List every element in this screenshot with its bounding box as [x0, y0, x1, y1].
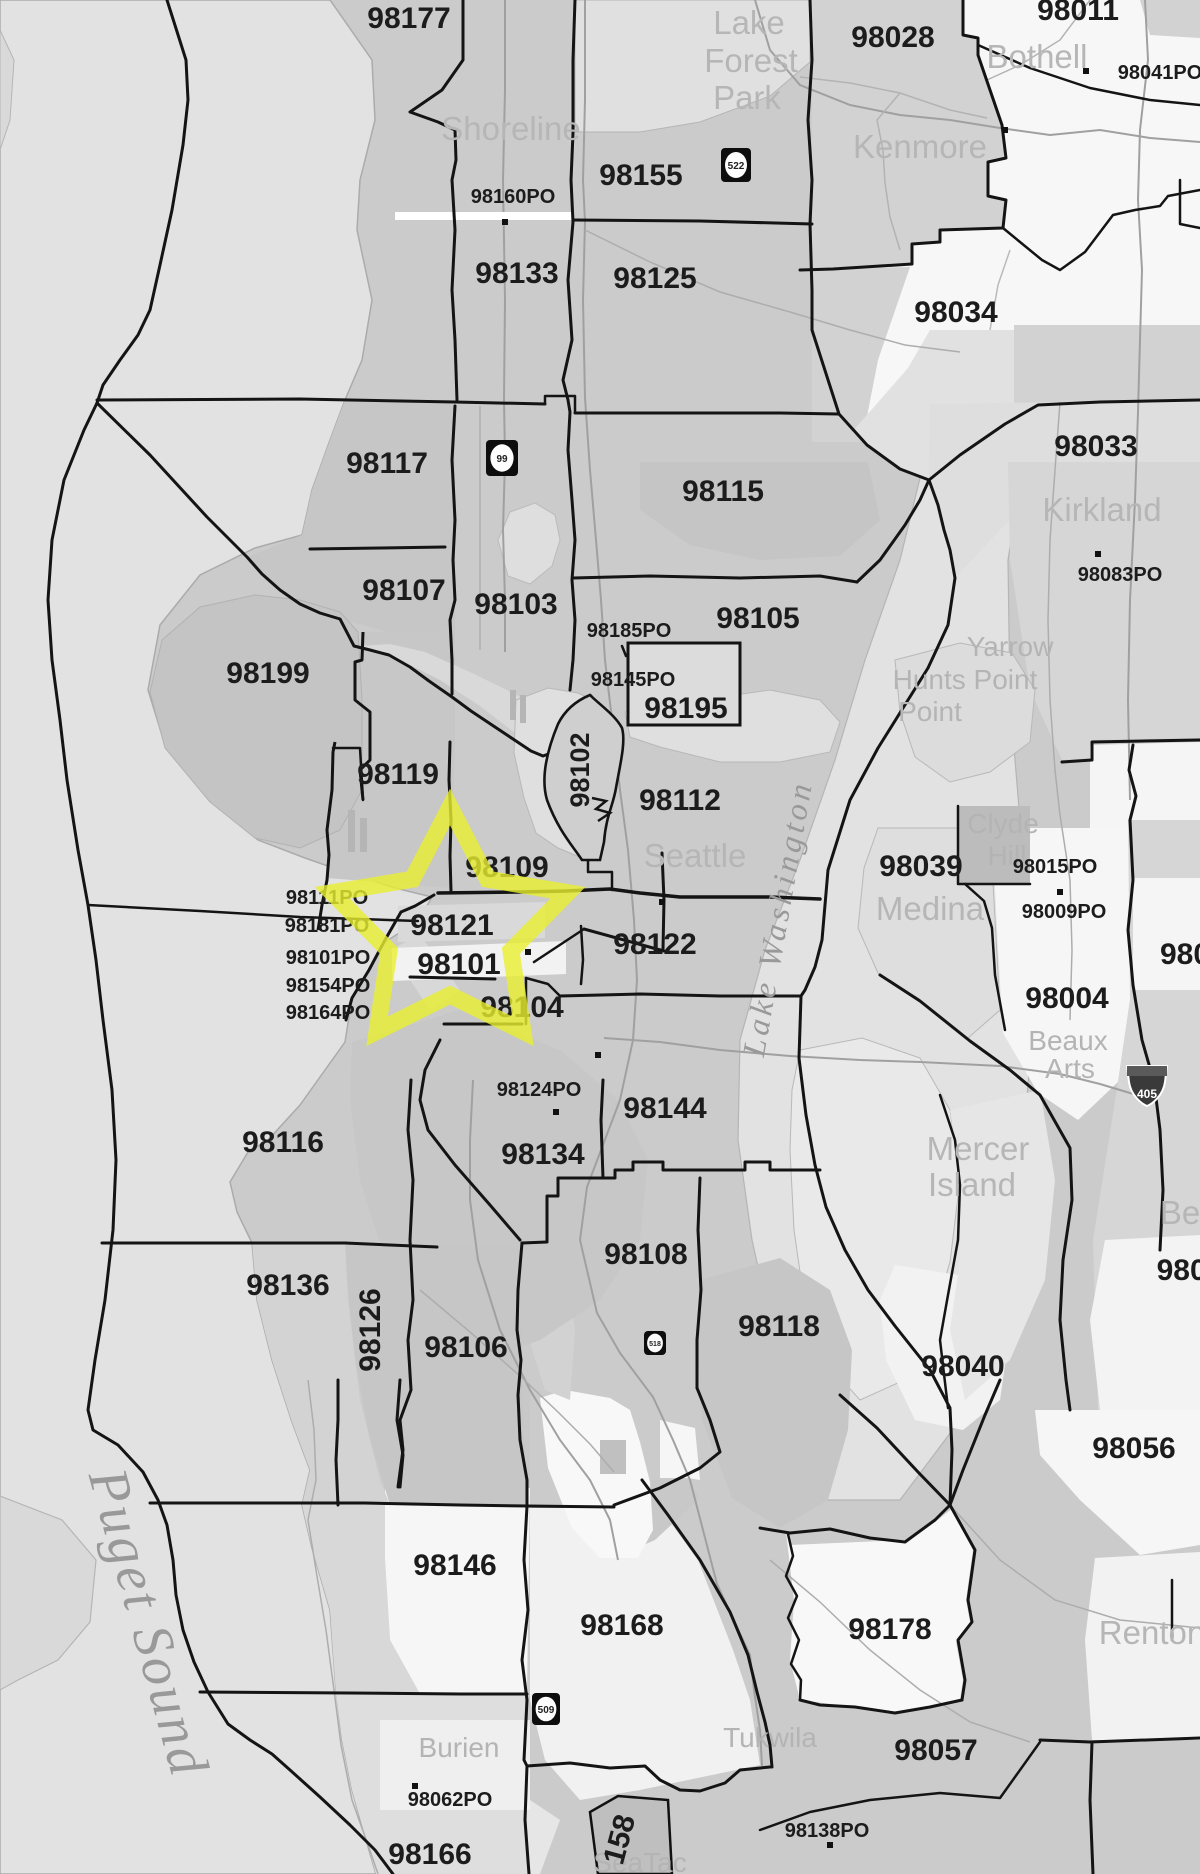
svg-text:98115: 98115	[682, 475, 764, 508]
svg-text:98101: 98101	[417, 948, 500, 981]
svg-text:98056: 98056	[1092, 1432, 1175, 1465]
svg-text:9800: 9800	[1157, 1254, 1200, 1287]
svg-text:98178: 98178	[848, 1613, 931, 1646]
svg-text:Seattle: Seattle	[644, 837, 747, 874]
svg-text:Arts: Arts	[1045, 1053, 1095, 1084]
svg-text:522: 522	[728, 161, 745, 172]
svg-text:Renton: Renton	[1099, 1614, 1200, 1651]
svg-text:98106: 98106	[424, 1331, 507, 1364]
svg-text:Forest: Forest	[704, 42, 798, 79]
svg-text:98083PO: 98083PO	[1078, 564, 1163, 586]
svg-text:98144: 98144	[623, 1092, 707, 1125]
svg-text:Tukwila: Tukwila	[723, 1722, 817, 1753]
svg-text:98103: 98103	[474, 588, 557, 621]
svg-text:98155: 98155	[599, 159, 682, 192]
svg-text:980: 980	[1160, 938, 1200, 971]
svg-text:98199: 98199	[226, 657, 309, 690]
svg-text:98160PO: 98160PO	[471, 186, 556, 208]
svg-text:405: 405	[1137, 1087, 1157, 1101]
svg-text:98126: 98126	[354, 1288, 387, 1371]
svg-text:98034: 98034	[914, 296, 998, 329]
svg-text:98177: 98177	[367, 2, 450, 35]
svg-text:98121: 98121	[410, 909, 493, 942]
svg-text:98009PO: 98009PO	[1022, 901, 1107, 923]
svg-text:98057: 98057	[894, 1734, 977, 1767]
svg-text:98101PO: 98101PO	[286, 947, 371, 969]
svg-text:98166: 98166	[388, 1838, 471, 1871]
svg-text:Lake: Lake	[713, 4, 785, 41]
svg-text:98041PO: 98041PO	[1118, 62, 1200, 84]
svg-text:Mercer: Mercer	[927, 1130, 1030, 1167]
svg-text:98040: 98040	[921, 1350, 1004, 1383]
svg-text:98154PO: 98154PO	[286, 975, 371, 997]
svg-text:98004: 98004	[1025, 982, 1109, 1015]
svg-text:98122: 98122	[613, 928, 696, 961]
svg-text:Beaux: Beaux	[1028, 1025, 1107, 1056]
svg-text:98105: 98105	[716, 602, 799, 635]
svg-text:98033: 98033	[1054, 430, 1137, 463]
svg-text:509: 509	[538, 1705, 555, 1716]
svg-text:Kirkland: Kirkland	[1042, 491, 1161, 528]
svg-text:98118: 98118	[738, 1310, 820, 1343]
svg-text:Yarrow: Yarrow	[967, 631, 1054, 662]
svg-text:Island: Island	[928, 1166, 1016, 1203]
svg-text:98112: 98112	[639, 784, 721, 817]
svg-text:98133: 98133	[475, 257, 558, 290]
svg-text:Bothell: Bothell	[987, 38, 1088, 75]
svg-text:98145PO: 98145PO	[591, 669, 676, 691]
svg-text:Park: Park	[713, 79, 781, 116]
svg-text:98134: 98134	[501, 1138, 585, 1171]
svg-text:98185PO: 98185PO	[587, 620, 672, 642]
svg-text:Shoreline: Shoreline	[441, 110, 580, 147]
svg-text:98107: 98107	[362, 574, 445, 607]
svg-text:98195: 98195	[644, 692, 727, 725]
svg-text:Burien: Burien	[419, 1732, 500, 1763]
svg-text:98138PO: 98138PO	[785, 1820, 870, 1842]
svg-text:98168: 98168	[580, 1609, 663, 1642]
svg-text:98124PO: 98124PO	[497, 1079, 582, 1101]
svg-text:98117: 98117	[346, 447, 428, 480]
svg-text:98125: 98125	[613, 262, 696, 295]
svg-text:98164PO: 98164PO	[286, 1002, 371, 1024]
svg-text:Kenmore: Kenmore	[853, 128, 987, 165]
svg-text:98146: 98146	[413, 1549, 496, 1582]
svg-text:98108: 98108	[604, 1238, 687, 1271]
svg-text:98119: 98119	[357, 758, 439, 791]
svg-text:Hunts Point: Hunts Point	[893, 664, 1038, 695]
svg-text:98102: 98102	[565, 732, 595, 807]
svg-text:98015PO: 98015PO	[1013, 856, 1098, 878]
svg-text:98028: 98028	[851, 21, 934, 54]
svg-text:98116: 98116	[242, 1126, 324, 1159]
svg-text:98062PO: 98062PO	[408, 1789, 493, 1811]
svg-text:99: 99	[496, 454, 508, 465]
svg-text:98039: 98039	[879, 850, 962, 883]
svg-text:518: 518	[649, 1341, 661, 1348]
svg-text:Be: Be	[1160, 1194, 1200, 1231]
svg-text:98011: 98011	[1037, 0, 1119, 27]
svg-text:Clyde: Clyde	[967, 808, 1039, 839]
svg-text:Medina: Medina	[876, 890, 985, 927]
svg-text:98136: 98136	[246, 1269, 329, 1302]
svg-text:Point: Point	[898, 696, 962, 727]
